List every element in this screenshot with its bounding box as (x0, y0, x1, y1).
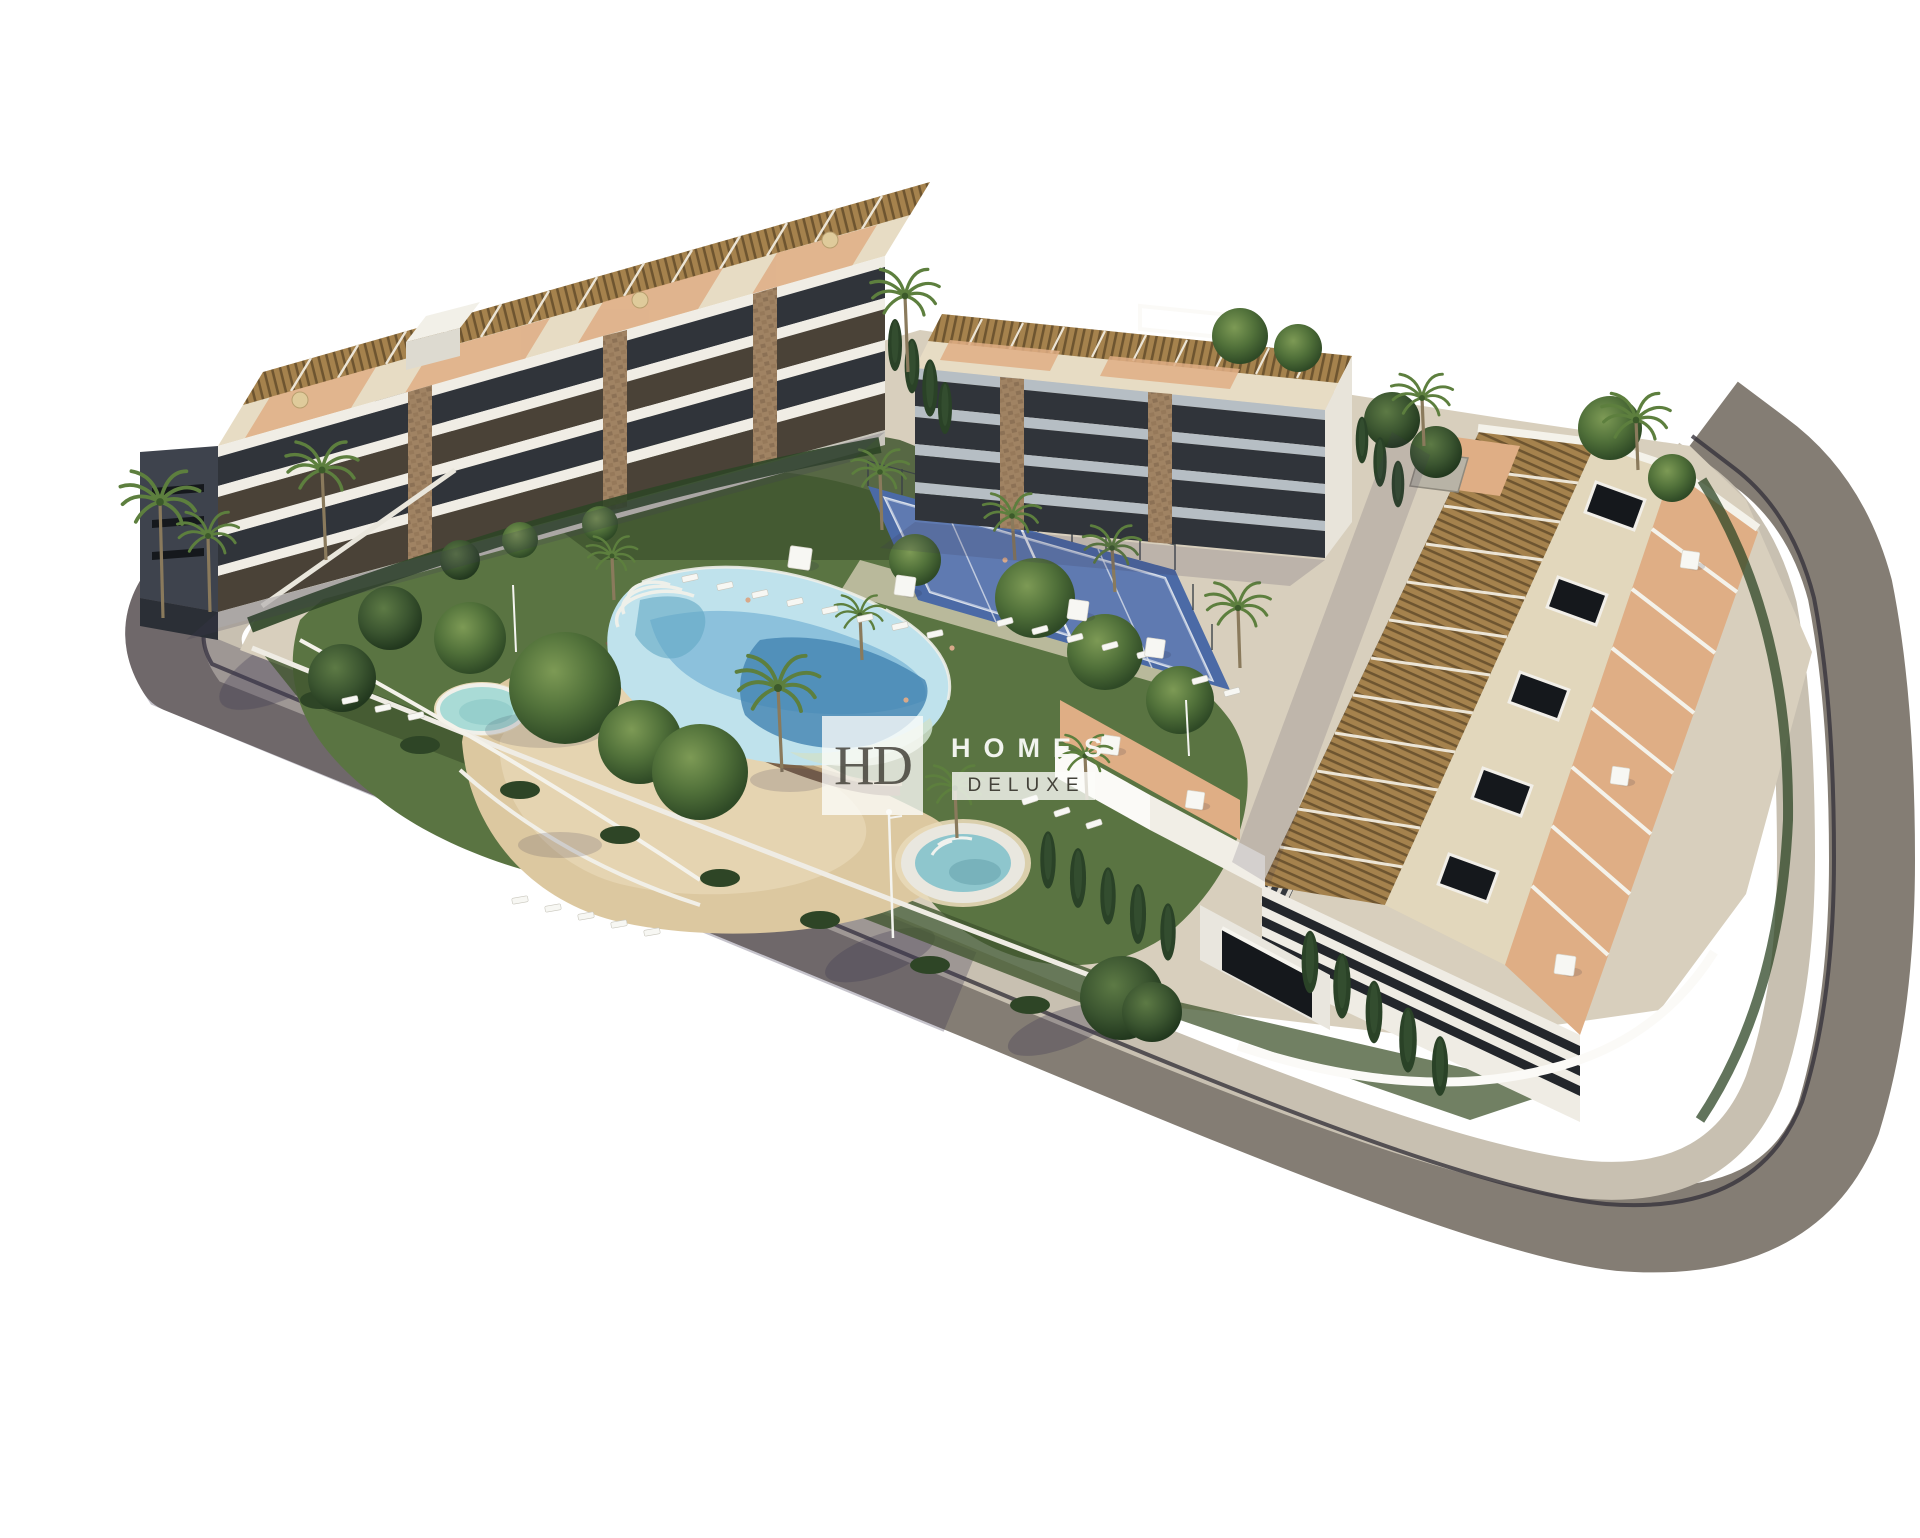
stone-pillar (603, 330, 627, 512)
stone-pillar (753, 287, 777, 466)
jacuzzi-pool (895, 819, 1031, 907)
west-end-wall (140, 446, 218, 640)
stone-pillar (1148, 392, 1172, 544)
watermark-brand-bottom: DELUXE (961, 775, 1085, 797)
architectural-render-image: HD HOMES DELUXE (0, 0, 1920, 1538)
stone-pillar (408, 385, 432, 560)
render-scene (0, 0, 1920, 1538)
watermark-brand-top: HOMES (951, 733, 1101, 764)
watermark-brand-bottom-box: DELUXE (952, 772, 1095, 800)
watermark-monogram: HD (834, 734, 911, 798)
watermark-monogram-box: HD (822, 716, 923, 815)
